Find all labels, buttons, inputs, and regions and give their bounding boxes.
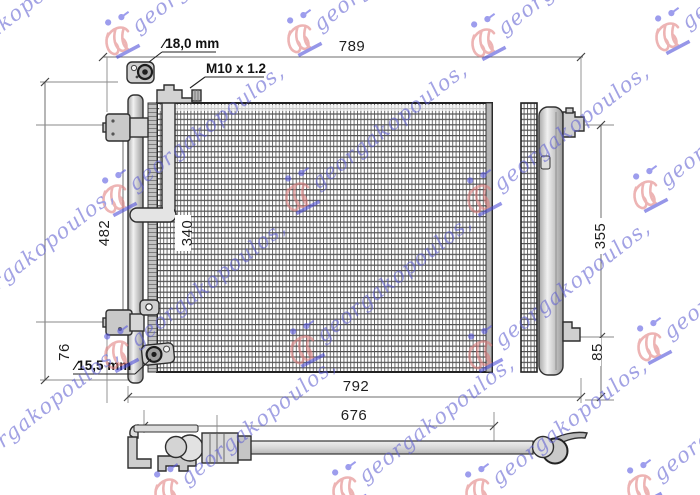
watermark-text: georgakopoulos, [0,0,94,85]
watermark-text: georgakopoulos, [676,0,700,34]
dim-label-side-bottom-offset: 85 [589,343,606,361]
m10-fitting [157,85,201,103]
pipe-cap-inner [166,437,187,458]
watermark-text: georgakopoulos, [488,59,654,196]
watermark-text: georgakopoulos, [175,353,341,490]
dim-label-bracket-span: 340 [179,220,196,247]
watermark-text: georgakopoulos, [654,55,700,192]
port-18mm [127,62,154,83]
pipe-arm [134,425,198,432]
watermark-text: georgakopoulos, [658,207,700,344]
callout-top-port: ∕18,0 mm [160,36,219,51]
dim-label-overall-width: 792 [343,378,370,395]
dim-label-top-width: 789 [339,38,366,55]
dim-label-overall-height: 482 [96,220,113,247]
pipe-z-bracket [128,437,151,468]
watermark-text: georgakopoulos, [0,183,119,320]
dim-label-pipe-length: 676 [341,407,368,424]
watermark-text: georgakopoulos, [308,0,474,36]
mount-bracket-top [103,114,148,141]
watermark-text: georgakopoulos, [126,0,292,38]
watermark-text: georgakopoulos, [492,0,658,40]
side-fitting-bottom [563,322,580,341]
watermark-text: georgakopoulos, [648,349,700,486]
dim-label-bottom-offset: 76 [56,343,73,361]
condenser-technical-drawing: 789 792 676 482 340 76 355 85 ∕18,0 mm M… [0,0,700,495]
